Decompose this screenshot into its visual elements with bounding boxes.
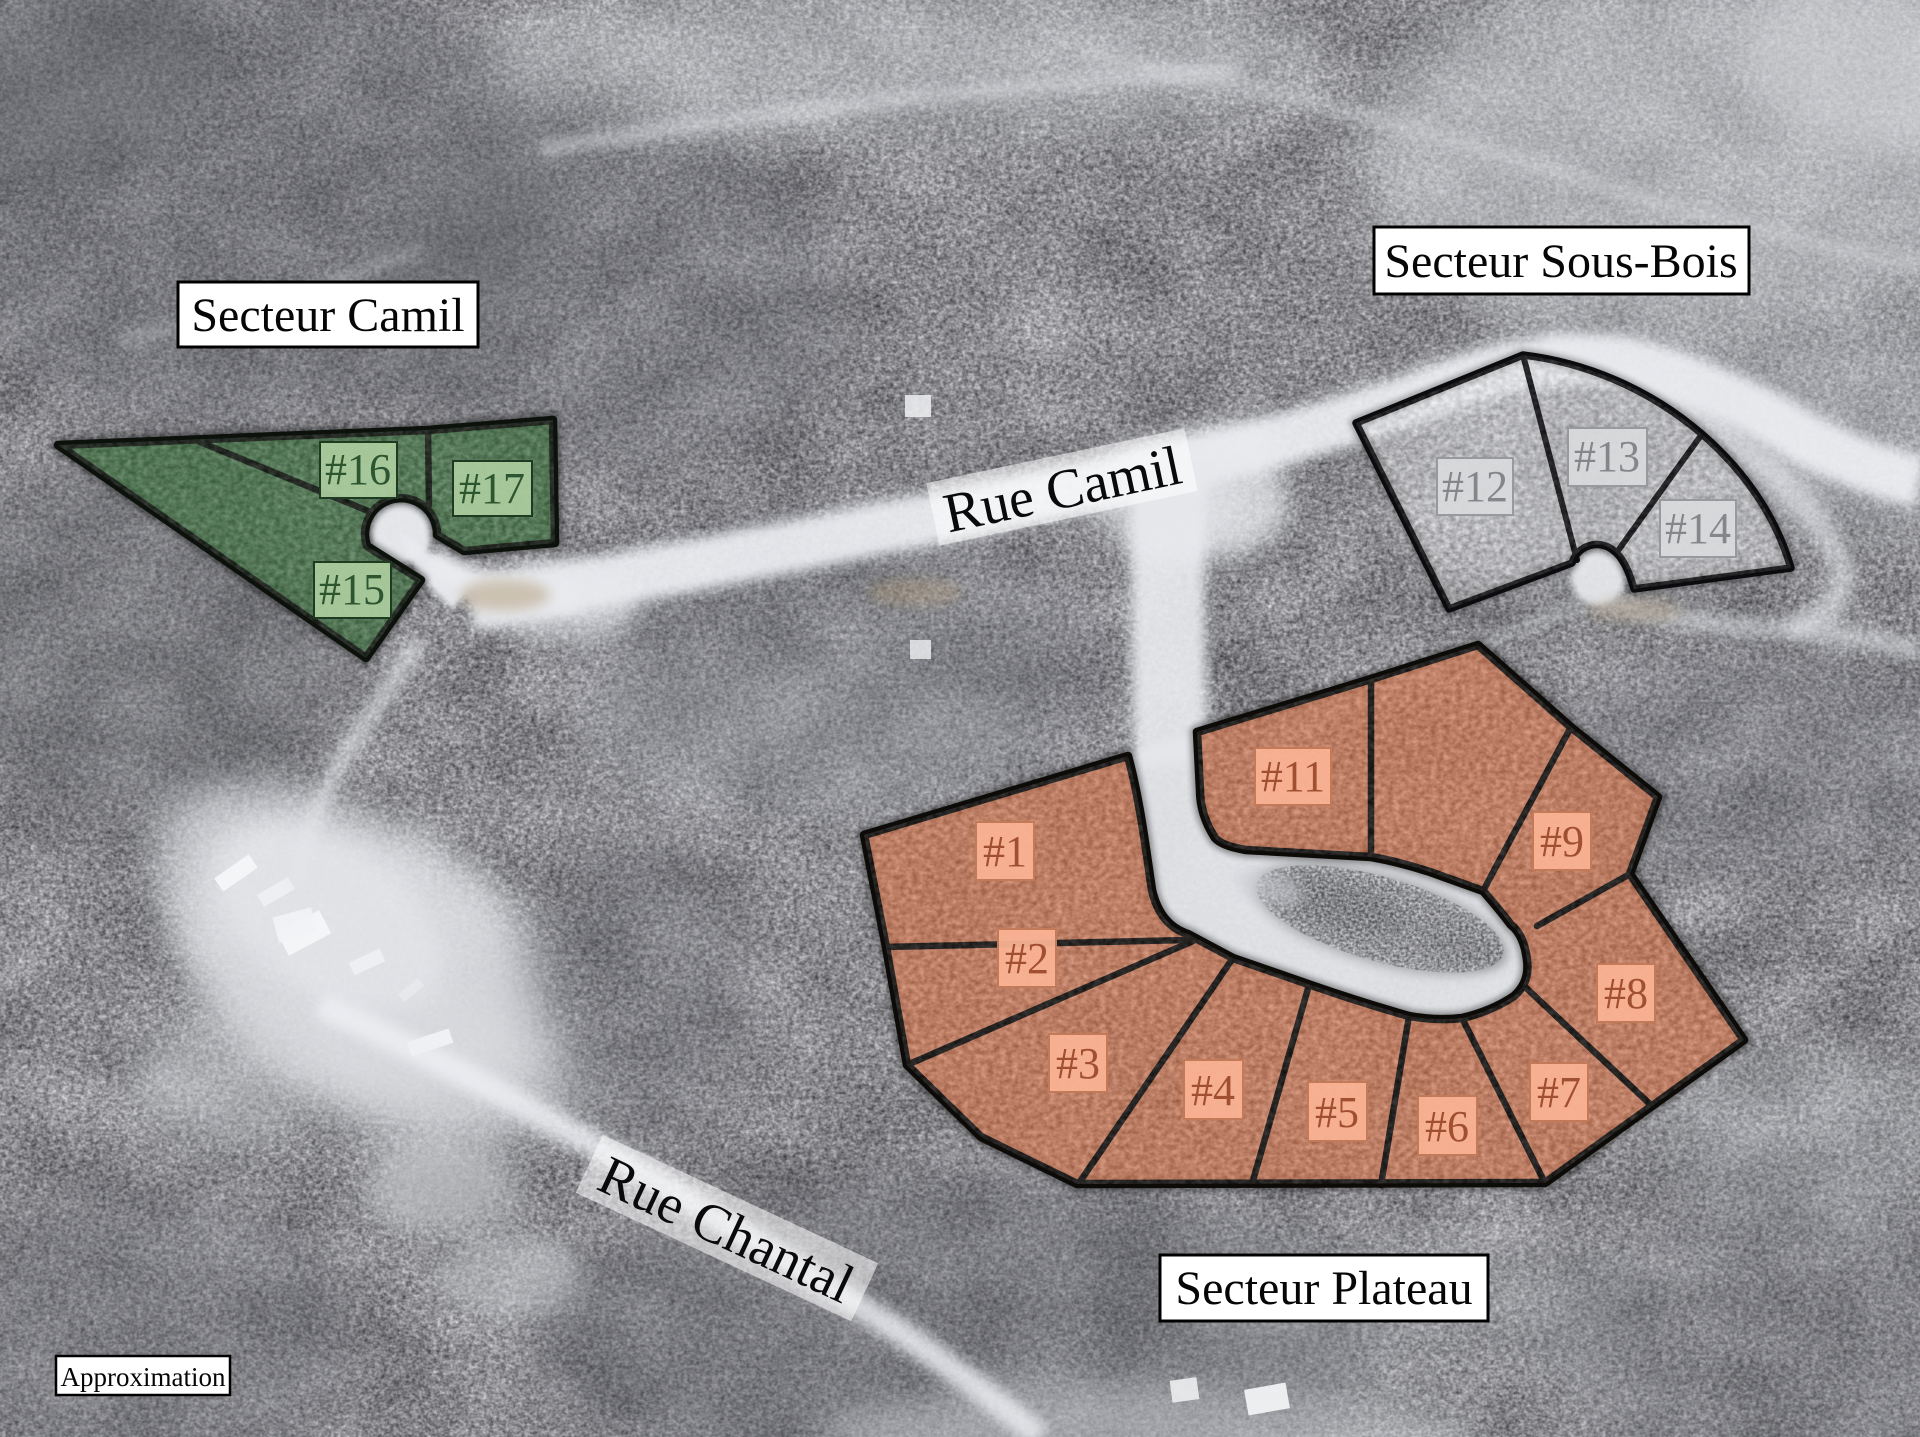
svg-text:#4: #4 [1191,1066,1235,1115]
svg-text:#9: #9 [1540,817,1584,866]
svg-text:#14: #14 [1665,504,1731,553]
svg-text:#12: #12 [1442,462,1508,511]
svg-text:#13: #13 [1574,432,1640,481]
svg-text:#6: #6 [1425,1102,1469,1151]
svg-text:#17: #17 [459,464,525,513]
svg-text:#1: #1 [983,827,1027,876]
svg-text:#16: #16 [325,445,391,494]
svg-text:Approximation: Approximation [61,1362,226,1392]
svg-text:#7: #7 [1537,1068,1581,1117]
svg-text:Secteur Sous-Bois: Secteur Sous-Bois [1384,235,1737,288]
svg-text:#8: #8 [1604,969,1648,1018]
svg-text:#15: #15 [319,565,385,614]
svg-text:#3: #3 [1056,1039,1100,1088]
svg-text:Secteur Plateau: Secteur Plateau [1175,1262,1472,1315]
svg-text:Secteur Camil: Secteur Camil [191,289,464,342]
svg-text:#11: #11 [1261,752,1325,801]
svg-text:#5: #5 [1315,1088,1359,1137]
svg-text:#2: #2 [1005,934,1049,983]
